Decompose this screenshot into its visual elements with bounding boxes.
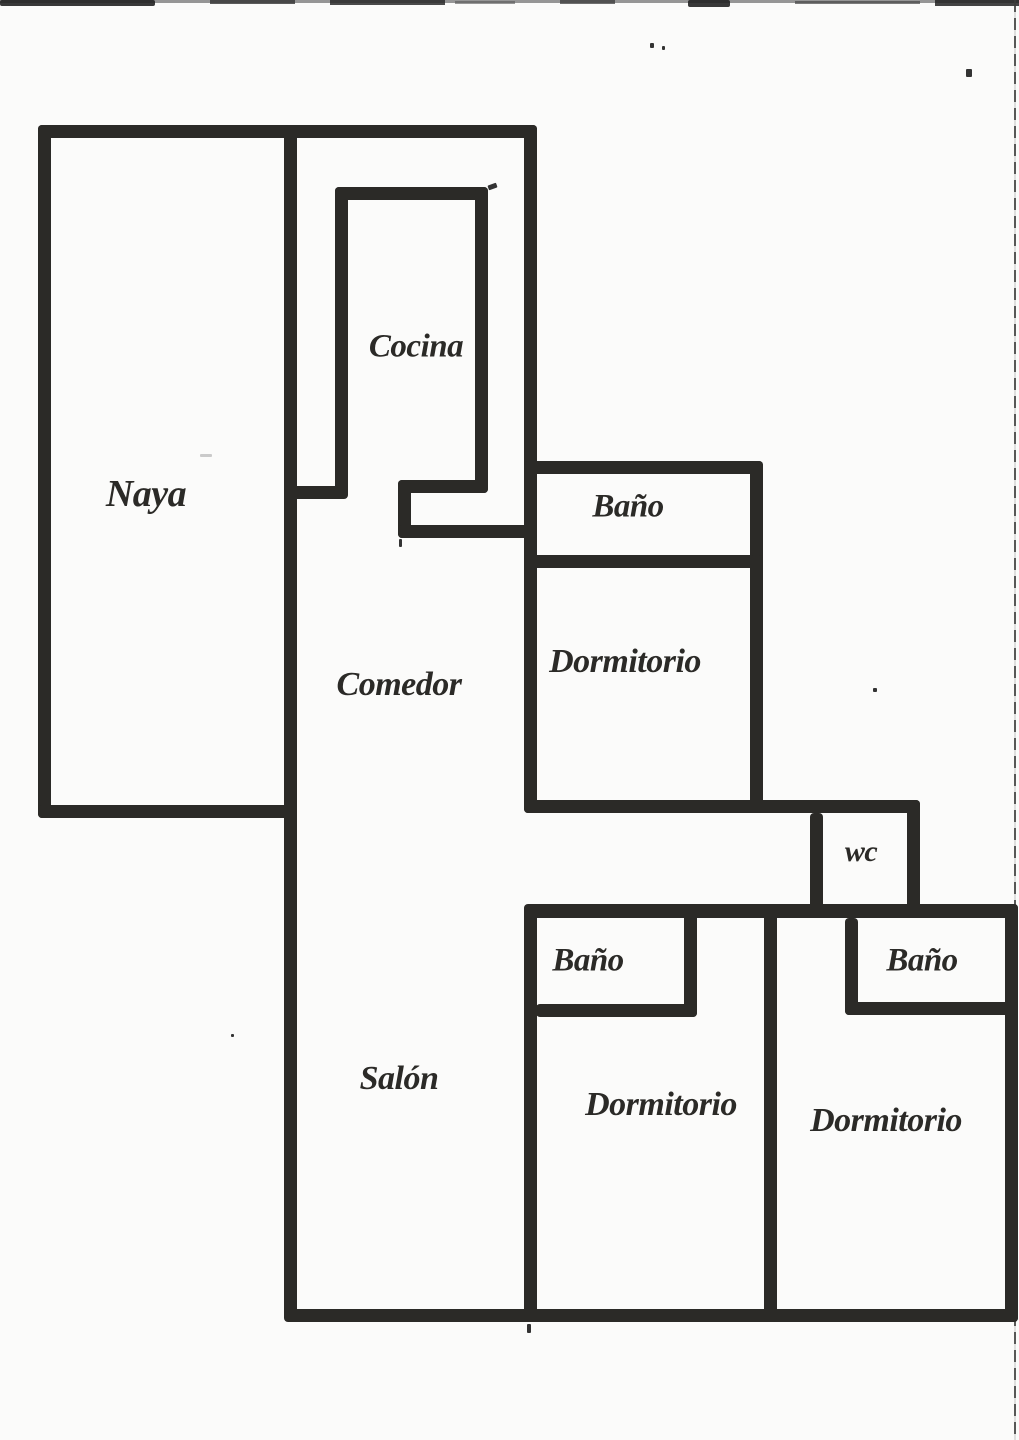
scan-speck: [650, 43, 654, 48]
wall-right-outer: [1005, 904, 1018, 1322]
room-label-dormitorio-right: Dormitorio: [810, 1104, 962, 1138]
scan-artifact-top-blob: [795, 1, 920, 4]
wall-bano-top-south: [524, 555, 763, 568]
wall-naya-left-outer: [38, 125, 51, 818]
room-dormitorio-top: Dormitorio: [537, 568, 750, 800]
wall-wc-east: [907, 800, 920, 915]
room-label-wc: wc: [845, 837, 877, 867]
wall-dormitorio-top-east: [750, 555, 763, 813]
scan-artifact-top-blob: [330, 0, 445, 5]
scan-speck: [527, 1324, 531, 1333]
room-label-cocina: Cocina: [369, 331, 463, 364]
room-naya: Naya: [51, 138, 284, 805]
room-label-bano-top: Baño: [592, 491, 663, 524]
scan-artifact-top-blob: [0, 0, 155, 6]
room-comedor: Comedor: [297, 493, 524, 805]
scan-speck: [873, 688, 877, 692]
scan-speck: [662, 46, 665, 50]
scan-artifact-top-blob: [560, 0, 615, 4]
room-label-salon: Salón: [360, 1062, 439, 1096]
room-bano-top: Baño: [537, 474, 750, 555]
wall-dormitorio-mid-east: [764, 904, 777, 1322]
wall-corridor-lower: [524, 905, 537, 1322]
room-dormitorio-right: Dormitorio: [777, 918, 1005, 1309]
wall-center-divider: [284, 125, 297, 1322]
scan-speck: [231, 1034, 234, 1037]
room-cocina: Cocina: [348, 200, 475, 493]
scan-artifact-top-blob: [688, 0, 730, 7]
wall-naya-bottom: [38, 805, 296, 818]
room-wc: wc: [823, 813, 907, 903]
wall-bano-top-east: [750, 461, 763, 568]
wall-hallway-north: [524, 800, 920, 813]
scan-speck: [487, 183, 497, 191]
wall-cocina-right: [475, 187, 488, 493]
room-label-comedor: Comedor: [337, 668, 462, 702]
room-dormitorio-mid: Dormitorio: [537, 918, 764, 1309]
floor-plan: Naya Cocina Baño Dormitorio Comedor wc B…: [0, 0, 1019, 1440]
room-label-naya: Naya: [106, 475, 186, 513]
scan-artifact-top-blob: [455, 1, 515, 4]
wall-bano-top-north: [524, 461, 763, 474]
wall-bottom-outer: [288, 1309, 1018, 1322]
wall-cocina-top: [335, 187, 488, 200]
room-salon: Salón: [297, 905, 524, 1309]
room-label-dormitorio-mid: Dormitorio: [585, 1088, 737, 1122]
wall-cocina-left: [335, 187, 348, 498]
wall-wc-west: [810, 813, 823, 915]
scan-artifact-top-blob: [935, 0, 1019, 6]
scan-speck: [966, 69, 972, 77]
room-label-dormitorio-top: Dormitorio: [549, 645, 701, 679]
scan-artifact-top-blob: [210, 0, 295, 4]
